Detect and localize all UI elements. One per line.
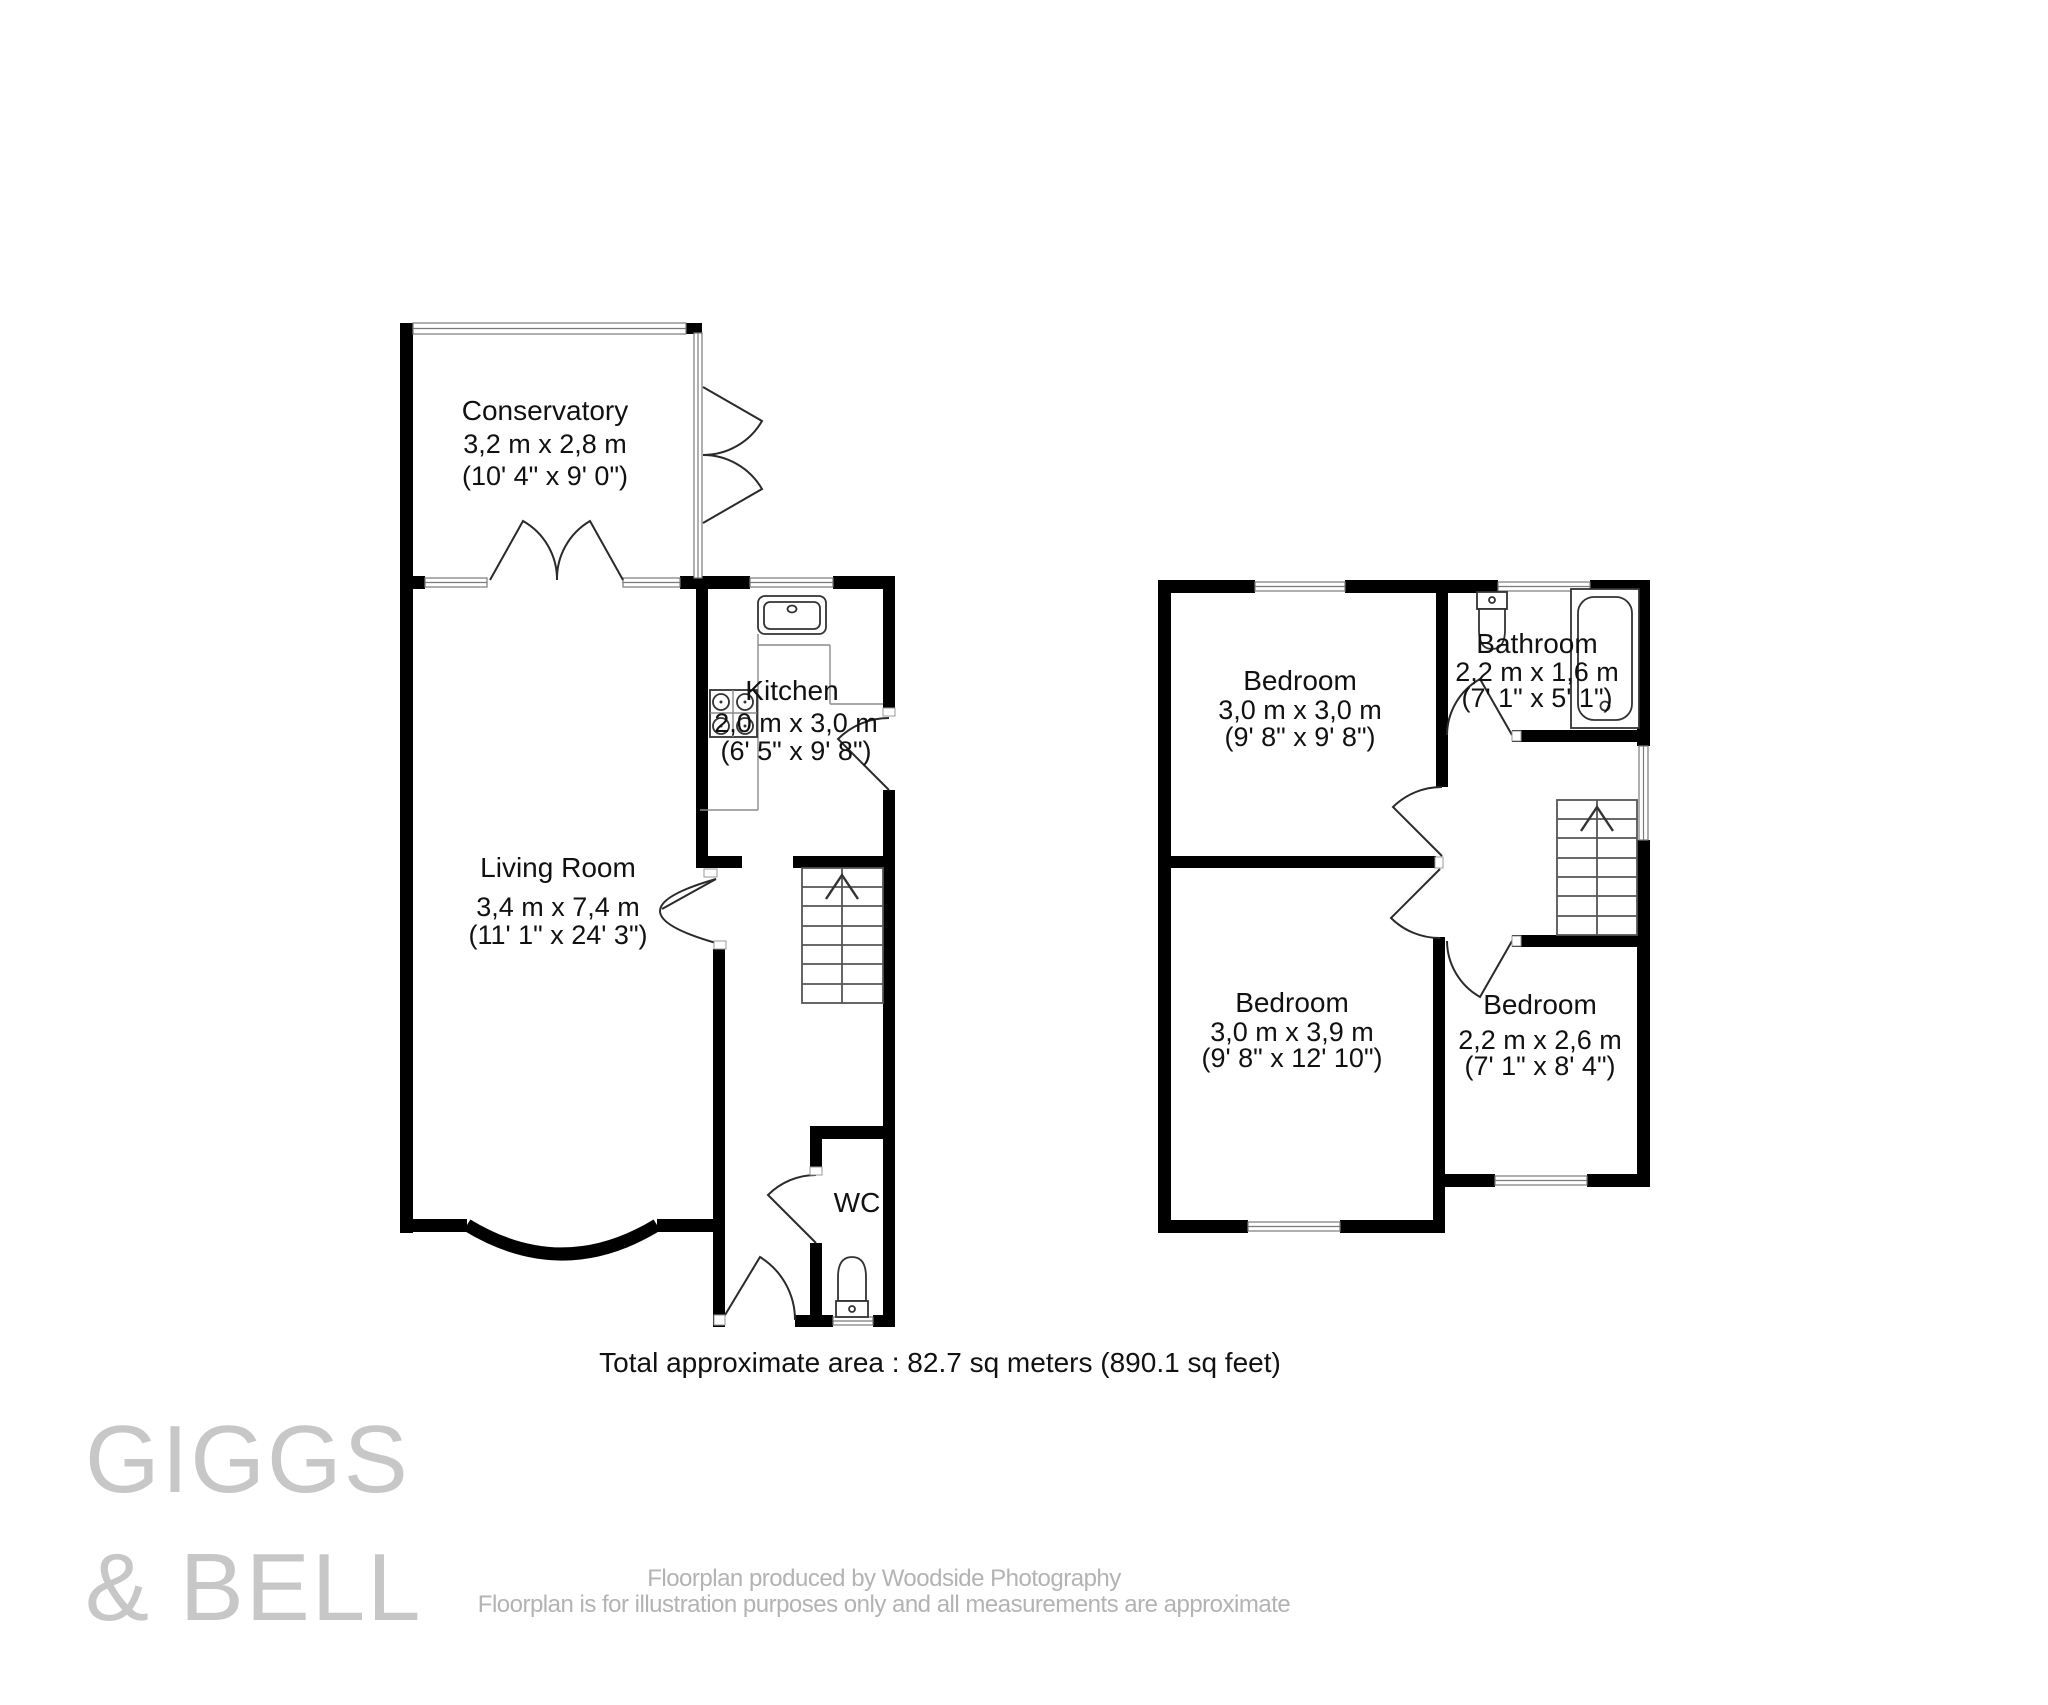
window <box>425 578 487 587</box>
french-door-arc <box>703 455 762 523</box>
window <box>694 333 702 578</box>
wc-door-arc <box>768 1175 816 1243</box>
living-room-label: Living Room <box>480 852 636 883</box>
conservatory-door-arc <box>490 521 557 580</box>
stairs-ground <box>802 868 883 1003</box>
ground-floor: Conservatory 3,2 m x 2,8 m (10' 4" x 9' … <box>400 323 895 1327</box>
bedroom-large-label: Bedroom <box>1235 987 1349 1018</box>
bedroom-top-dims-imperial: (9' 8" x 9' 8") <box>1224 722 1375 752</box>
bedroom-top-label: Bedroom <box>1243 665 1357 696</box>
conservatory-dims-imperial: (10' 4" x 9' 0") <box>462 461 628 491</box>
sink-icon <box>758 596 826 634</box>
window <box>413 323 686 334</box>
window <box>623 578 680 587</box>
kitchen-dims-metric: 2,0 m x 3,0 m <box>714 708 878 738</box>
bedroom-top-dims-metric: 3,0 m x 3,0 m <box>1218 695 1382 725</box>
bedroom-top-door-arc <box>1393 787 1442 856</box>
agency-logo: GIGGS & BELL <box>85 1406 423 1641</box>
living-room-door-arc <box>660 879 716 943</box>
first-floor-doors <box>1391 679 1512 997</box>
window <box>750 578 833 587</box>
kitchen-dims-imperial: (6' 5" x 9' 8") <box>720 736 871 766</box>
window <box>1639 746 1648 840</box>
logo-line1: GIGGS <box>85 1406 410 1513</box>
living-room-dims-imperial: (11' 1" x 24' 3") <box>468 920 647 950</box>
floorplan-page: Conservatory 3,2 m x 2,8 m (10' 4" x 9' … <box>0 0 2048 1705</box>
front-door-arc <box>722 1257 795 1320</box>
conservatory-door-arc <box>557 521 623 580</box>
bedroom-small-label: Bedroom <box>1483 989 1597 1020</box>
bedroom-large-dims-imperial: (9' 8" x 12' 10") <box>1201 1043 1382 1073</box>
conservatory-label: Conservatory <box>462 395 629 426</box>
footer-line1: Floorplan produced by Woodside Photograp… <box>647 1565 1121 1592</box>
first-floor: Bedroom 3,0 m x 3,0 m (9' 8" x 9' 8") Ba… <box>1158 580 1650 1233</box>
door-notches <box>704 708 895 1325</box>
stairs-first <box>1557 800 1637 935</box>
living-room-dims-metric: 3,4 m x 7,4 m <box>476 892 640 922</box>
wc-toilet-icon <box>836 1257 868 1317</box>
floorplan-svg: Conservatory 3,2 m x 2,8 m (10' 4" x 9' … <box>0 0 2048 1705</box>
footer-disclaimer: Floorplan produced by Woodside Photograp… <box>478 1565 1291 1618</box>
kitchen-label: Kitchen <box>745 675 838 706</box>
window <box>1495 1176 1587 1185</box>
conservatory-dims-metric: 3,2 m x 2,8 m <box>463 429 627 459</box>
wc-label: WC <box>834 1187 881 1218</box>
logo-line2: & BELL <box>85 1534 423 1641</box>
window <box>833 1317 873 1325</box>
window <box>1255 582 1345 591</box>
bedroom-large-door-arc <box>1391 869 1440 938</box>
bathroom-dims-imperial: (7' 1" x 5' 1") <box>1461 683 1612 713</box>
bathroom-label: Bathroom <box>1476 628 1597 659</box>
bay-window-wall <box>467 1225 657 1254</box>
total-area-text: Total approximate area : 82.7 sq meters … <box>599 1347 1281 1378</box>
french-door-arc <box>703 387 762 455</box>
footer-line2: Floorplan is for illustration purposes o… <box>478 1591 1291 1618</box>
window <box>1248 1222 1340 1231</box>
living-room-door-leaf <box>662 879 716 909</box>
bedroom-small-dims-imperial: (7' 1" x 8' 4") <box>1464 1051 1615 1081</box>
